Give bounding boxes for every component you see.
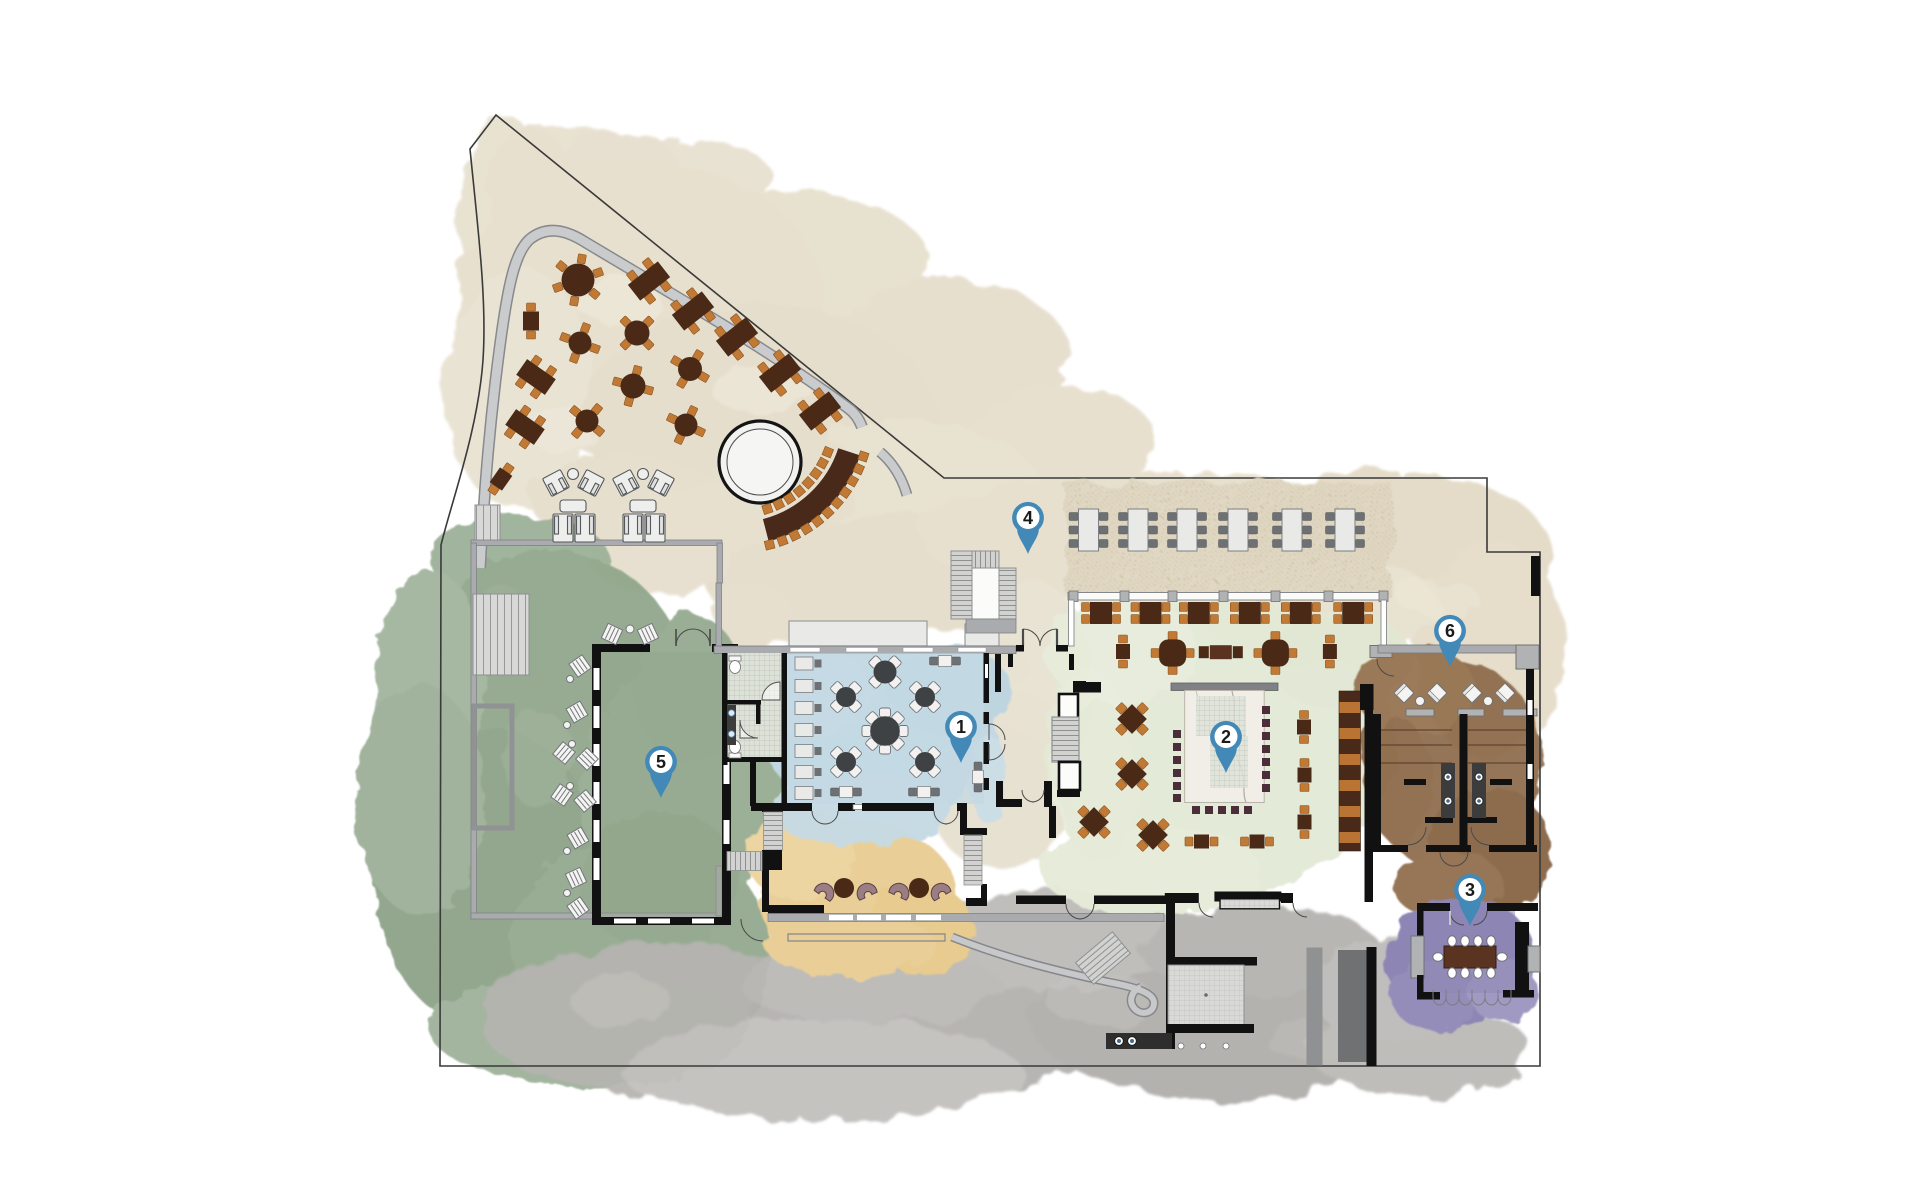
svg-text:1: 1 [956,717,966,737]
svg-text:4: 4 [1023,508,1033,528]
svg-text:5: 5 [656,752,666,772]
svg-text:3: 3 [1465,880,1475,900]
svg-text:6: 6 [1445,621,1455,641]
svg-text:2: 2 [1221,727,1231,747]
